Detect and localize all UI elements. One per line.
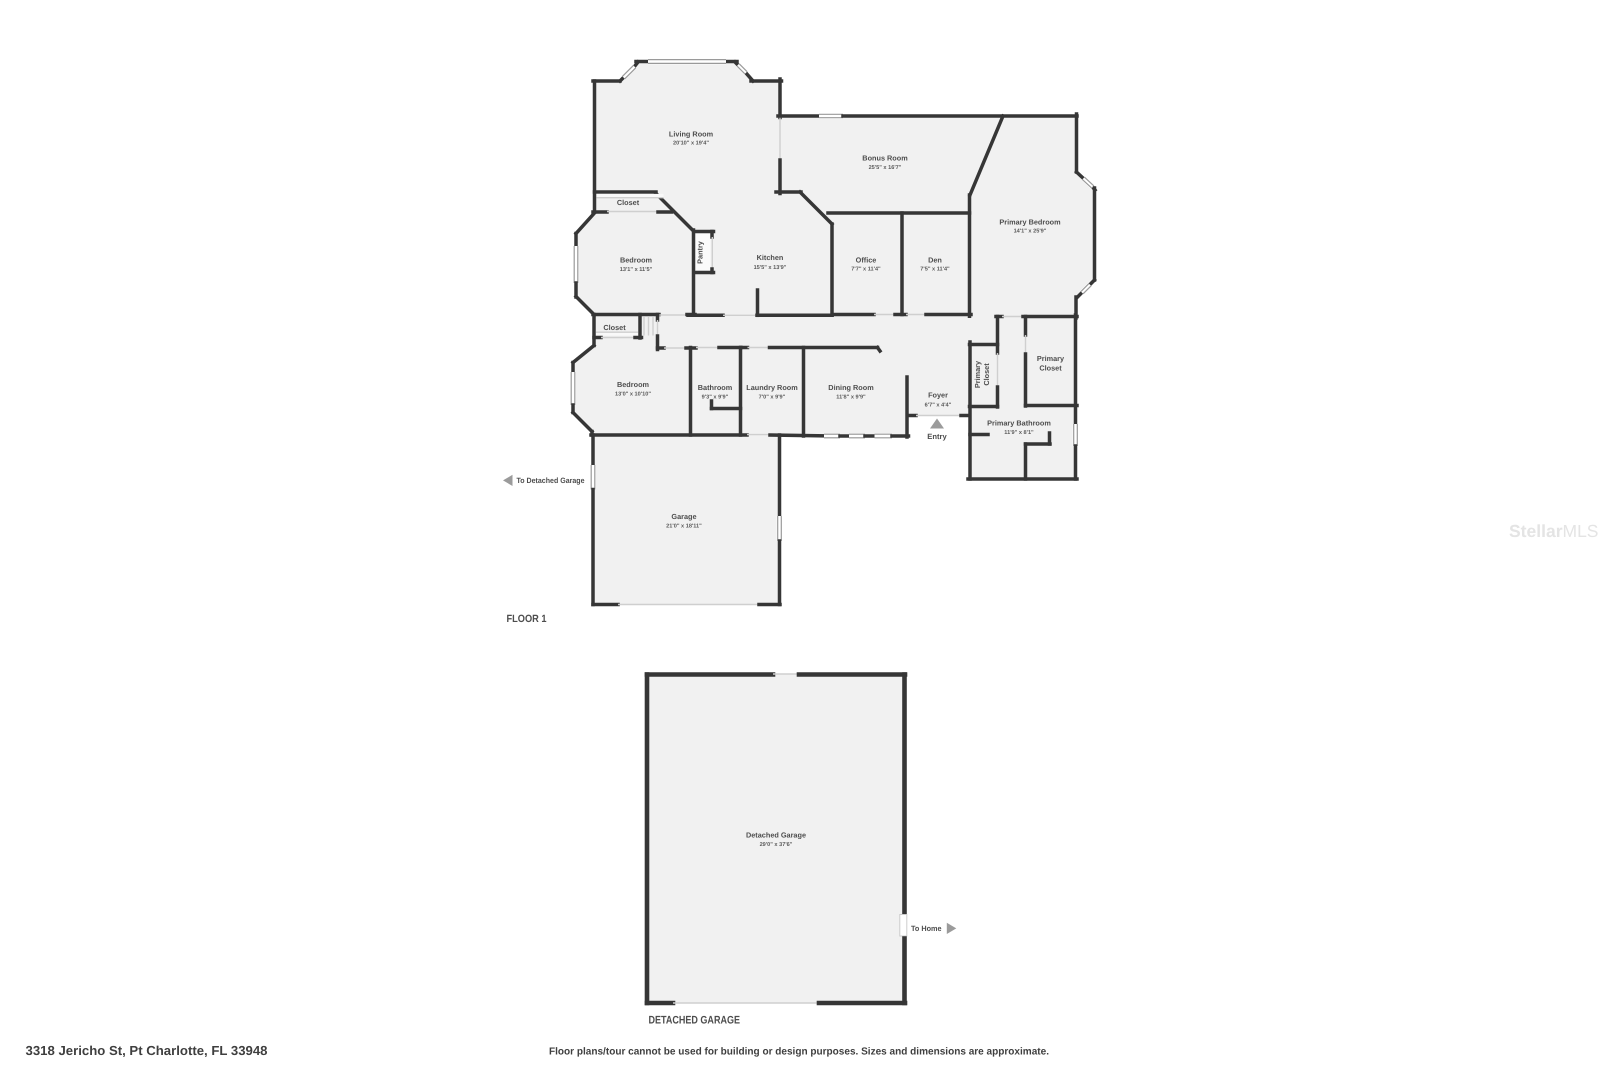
svg-text:Bedroom: Bedroom — [620, 256, 653, 265]
svg-text:Primary: Primary — [1037, 354, 1065, 363]
svg-text:11'8" x 9'9": 11'8" x 9'9" — [836, 395, 866, 401]
svg-text:29'0" x 37'6": 29'0" x 37'6" — [760, 842, 793, 848]
svg-text:Living Room: Living Room — [669, 130, 714, 139]
svg-text:15'5" x 13'9": 15'5" x 13'9" — [754, 265, 787, 271]
svg-text:Primary: Primary — [973, 360, 982, 388]
svg-text:6'7" x 4'4": 6'7" x 4'4" — [925, 403, 952, 409]
svg-text:Bathroom: Bathroom — [698, 383, 733, 392]
svg-text:Bonus Room: Bonus Room — [862, 154, 908, 163]
svg-text:11'9" x 8'1": 11'9" x 8'1" — [1004, 430, 1034, 436]
svg-text:StellarMLS: StellarMLS — [1509, 521, 1598, 541]
svg-text:Primary Bedroom: Primary Bedroom — [999, 218, 1061, 227]
svg-text:3318 Jericho St, Pt Charlotte,: 3318 Jericho St, Pt Charlotte, FL 33948 — [26, 1043, 268, 1058]
svg-text:Closet: Closet — [982, 363, 991, 386]
svg-text:7'5" x 11'4": 7'5" x 11'4" — [920, 267, 950, 273]
svg-text:To Detached Garage: To Detached Garage — [517, 476, 586, 485]
svg-text:13'0" x 10'10": 13'0" x 10'10" — [615, 392, 651, 398]
svg-text:Primary Bathroom: Primary Bathroom — [987, 419, 1051, 428]
svg-text:7'7" x 11'4": 7'7" x 11'4" — [851, 267, 881, 273]
svg-text:FLOOR 1: FLOOR 1 — [507, 613, 547, 625]
svg-text:Office: Office — [856, 255, 877, 264]
svg-text:Pantry: Pantry — [696, 240, 705, 264]
svg-text:DETACHED GARAGE: DETACHED GARAGE — [649, 1015, 741, 1027]
svg-text:14'1" x 25'9": 14'1" x 25'9" — [1014, 229, 1047, 235]
svg-text:Closet: Closet — [603, 323, 626, 332]
svg-text:13'1" x 11'5": 13'1" x 11'5" — [620, 267, 653, 273]
svg-text:9'3" x 9'9": 9'3" x 9'9" — [702, 395, 729, 401]
svg-text:Entry: Entry — [927, 432, 947, 441]
svg-text:Kitchen: Kitchen — [757, 253, 784, 262]
svg-text:Bedroom: Bedroom — [617, 380, 650, 389]
svg-text:Foyer: Foyer — [928, 391, 948, 400]
svg-text:Den: Den — [928, 255, 942, 264]
svg-text:21'0" x 18'11": 21'0" x 18'11" — [666, 524, 702, 530]
svg-text:Closet: Closet — [617, 198, 640, 207]
svg-text:Dining Room: Dining Room — [828, 383, 874, 392]
svg-text:Detached Garage: Detached Garage — [746, 831, 806, 840]
svg-text:To Home: To Home — [911, 924, 942, 933]
svg-text:Floor plans/tour cannot be use: Floor plans/tour cannot be used for buil… — [549, 1047, 1049, 1058]
svg-text:20'10" x 19'4": 20'10" x 19'4" — [673, 141, 709, 147]
svg-text:Garage: Garage — [671, 512, 696, 521]
svg-text:7'0" x 9'9": 7'0" x 9'9" — [759, 395, 786, 401]
svg-text:25'5" x 16'7": 25'5" x 16'7" — [869, 165, 902, 171]
svg-text:Laundry Room: Laundry Room — [746, 383, 798, 392]
svg-text:Closet: Closet — [1039, 364, 1062, 373]
